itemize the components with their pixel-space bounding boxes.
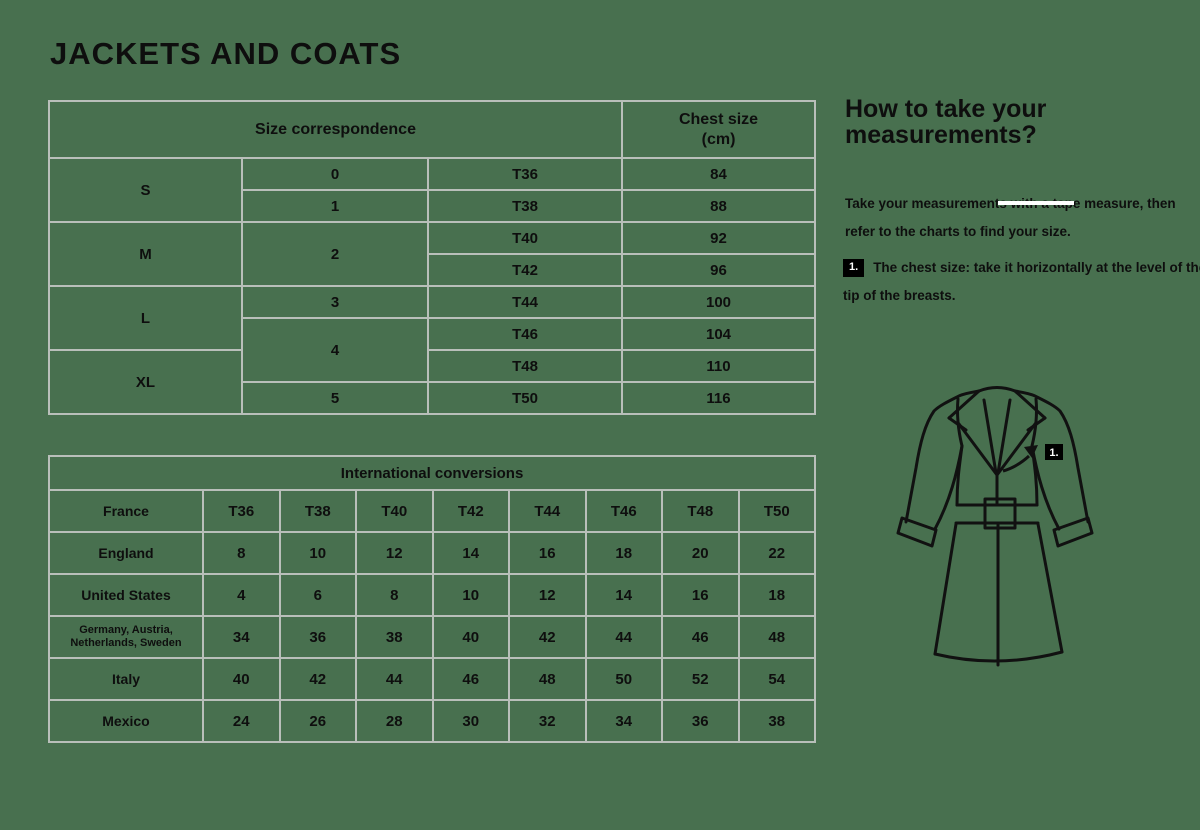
conversion-value-cell: 32 bbox=[509, 700, 586, 742]
french-size-cell: T42 bbox=[428, 254, 622, 286]
country-cell: United States bbox=[49, 574, 203, 616]
size-cell: S bbox=[49, 158, 242, 222]
conversion-value-cell: 40 bbox=[203, 658, 280, 700]
french-size-cell: T44 bbox=[428, 286, 622, 318]
number-cell: 1 bbox=[242, 190, 428, 222]
conversion-value-cell: 26 bbox=[280, 700, 357, 742]
conversion-value-cell: T46 bbox=[586, 490, 663, 532]
conversion-value-cell: 36 bbox=[280, 616, 357, 658]
step-1: 1.The chest size: take it horizontally a… bbox=[843, 254, 1200, 310]
conversion-value-cell: 46 bbox=[662, 616, 739, 658]
conversion-value-cell: 16 bbox=[509, 532, 586, 574]
step-1-badge: 1. bbox=[843, 259, 864, 277]
chest-value-cell: 92 bbox=[622, 222, 815, 254]
chest-size-header-line2: (cm) bbox=[623, 130, 814, 150]
size-correspondence-header: Size correspondence bbox=[49, 101, 622, 158]
country-cell: Mexico bbox=[49, 700, 203, 742]
chest-value-cell: 104 bbox=[622, 318, 815, 350]
table-row: XL T48 110 bbox=[49, 350, 815, 382]
french-size-cell: T38 bbox=[428, 190, 622, 222]
size-cell: L bbox=[49, 286, 242, 350]
trench-coat-icon bbox=[898, 388, 1092, 666]
table-row: S 0 T36 84 bbox=[49, 158, 815, 190]
conversion-value-cell: T50 bbox=[739, 490, 816, 532]
conversion-value-cell: 22 bbox=[739, 532, 816, 574]
conversion-value-cell: 20 bbox=[662, 532, 739, 574]
conversion-value-cell: 10 bbox=[280, 532, 357, 574]
international-conversions-table: International conversions France T36 T38… bbox=[48, 455, 816, 743]
measurements-heading: How to take your measurements? bbox=[845, 96, 1095, 148]
conversion-value-cell: 42 bbox=[280, 658, 357, 700]
conversion-value-cell: 14 bbox=[433, 532, 510, 574]
chest-value-cell: 100 bbox=[622, 286, 815, 318]
instructions-intro: Take your measurements with a tape measu… bbox=[845, 190, 1180, 246]
page-title: JACKETS AND COATS bbox=[50, 36, 401, 72]
conversion-value-cell: 8 bbox=[356, 574, 433, 616]
conversion-value-cell: T48 bbox=[662, 490, 739, 532]
conversion-value-cell: 30 bbox=[433, 700, 510, 742]
french-size-cell: T36 bbox=[428, 158, 622, 190]
international-conversions-header: International conversions bbox=[49, 456, 815, 490]
conversion-value-cell: 14 bbox=[586, 574, 663, 616]
conversion-value-cell: T42 bbox=[433, 490, 510, 532]
conversion-value-cell: 40 bbox=[433, 616, 510, 658]
number-cell: 0 bbox=[242, 158, 428, 190]
conversion-value-cell: 52 bbox=[662, 658, 739, 700]
table-row: France T36 T38 T40 T42 T44 T46 T48 T50 bbox=[49, 490, 815, 532]
table-row: England 8 10 12 14 16 18 20 22 bbox=[49, 532, 815, 574]
table-header-row: Size correspondence Chest size (cm) bbox=[49, 101, 815, 158]
size-correspondence-table: Size correspondence Chest size (cm) S 0 … bbox=[48, 100, 816, 415]
conversion-value-cell: 12 bbox=[356, 532, 433, 574]
conversion-value-cell: T44 bbox=[509, 490, 586, 532]
table-row: Mexico 24 26 28 30 32 34 36 38 bbox=[49, 700, 815, 742]
country-cell: England bbox=[49, 532, 203, 574]
step-1-text: The chest size: take it horizontally at … bbox=[843, 260, 1200, 303]
conversion-value-cell: 54 bbox=[739, 658, 816, 700]
table-header-row: International conversions bbox=[49, 456, 815, 490]
size-cell: M bbox=[49, 222, 242, 286]
chest-value-cell: 116 bbox=[622, 382, 815, 414]
table-row: Italy 40 42 44 46 48 50 52 54 bbox=[49, 658, 815, 700]
conversion-value-cell: 44 bbox=[586, 616, 663, 658]
conversion-value-cell: 24 bbox=[203, 700, 280, 742]
number-cell: 3 bbox=[242, 286, 428, 318]
conversion-value-cell: 18 bbox=[739, 574, 816, 616]
coat-badge-label: 1. bbox=[1049, 447, 1058, 459]
conversion-value-cell: 18 bbox=[586, 532, 663, 574]
conversion-value-cell: 6 bbox=[280, 574, 357, 616]
french-size-cell: T48 bbox=[428, 350, 622, 382]
conversion-value-cell: 8 bbox=[203, 532, 280, 574]
chest-value-cell: 88 bbox=[622, 190, 815, 222]
table-row: L 3 T44 100 bbox=[49, 286, 815, 318]
french-size-cell: T40 bbox=[428, 222, 622, 254]
table-row: United States 4 6 8 10 12 14 16 18 bbox=[49, 574, 815, 616]
conversion-value-cell: 48 bbox=[739, 616, 816, 658]
french-size-cell: T46 bbox=[428, 318, 622, 350]
conversion-value-cell: 44 bbox=[356, 658, 433, 700]
chest-value-cell: 96 bbox=[622, 254, 815, 286]
conversion-value-cell: T38 bbox=[280, 490, 357, 532]
conversion-value-cell: 50 bbox=[586, 658, 663, 700]
chest-size-header-line1: Chest size bbox=[623, 110, 814, 130]
conversion-value-cell: 16 bbox=[662, 574, 739, 616]
conversion-value-cell: 34 bbox=[203, 616, 280, 658]
white-line-artifact bbox=[998, 201, 1074, 205]
conversion-value-cell: 34 bbox=[586, 700, 663, 742]
conversion-value-cell: T40 bbox=[356, 490, 433, 532]
conversion-value-cell: 46 bbox=[433, 658, 510, 700]
conversion-value-cell: T36 bbox=[203, 490, 280, 532]
conversion-value-cell: 12 bbox=[509, 574, 586, 616]
number-cell: 4 bbox=[242, 318, 428, 382]
conversion-value-cell: 38 bbox=[739, 700, 816, 742]
coat-measurement-badge: 1. bbox=[1045, 444, 1063, 460]
size-cell: XL bbox=[49, 350, 242, 414]
conversion-value-cell: 10 bbox=[433, 574, 510, 616]
conversion-value-cell: 42 bbox=[509, 616, 586, 658]
chest-size-header: Chest size (cm) bbox=[622, 101, 815, 158]
chest-value-cell: 110 bbox=[622, 350, 815, 382]
country-cell: Germany, Austria, Netherlands, Sweden bbox=[49, 616, 203, 658]
country-cell: Italy bbox=[49, 658, 203, 700]
conversion-value-cell: 36 bbox=[662, 700, 739, 742]
conversion-value-cell: 28 bbox=[356, 700, 433, 742]
number-cell: 5 bbox=[242, 382, 428, 414]
conversion-value-cell: 48 bbox=[509, 658, 586, 700]
number-cell: 2 bbox=[242, 222, 428, 286]
table-row: M 2 T40 92 bbox=[49, 222, 815, 254]
coat-illustration: 1. bbox=[895, 383, 1095, 673]
french-size-cell: T50 bbox=[428, 382, 622, 414]
table-row: Germany, Austria, Netherlands, Sweden 34… bbox=[49, 616, 815, 658]
conversion-value-cell: 38 bbox=[356, 616, 433, 658]
chest-value-cell: 84 bbox=[622, 158, 815, 190]
country-cell: France bbox=[49, 490, 203, 532]
conversion-value-cell: 4 bbox=[203, 574, 280, 616]
